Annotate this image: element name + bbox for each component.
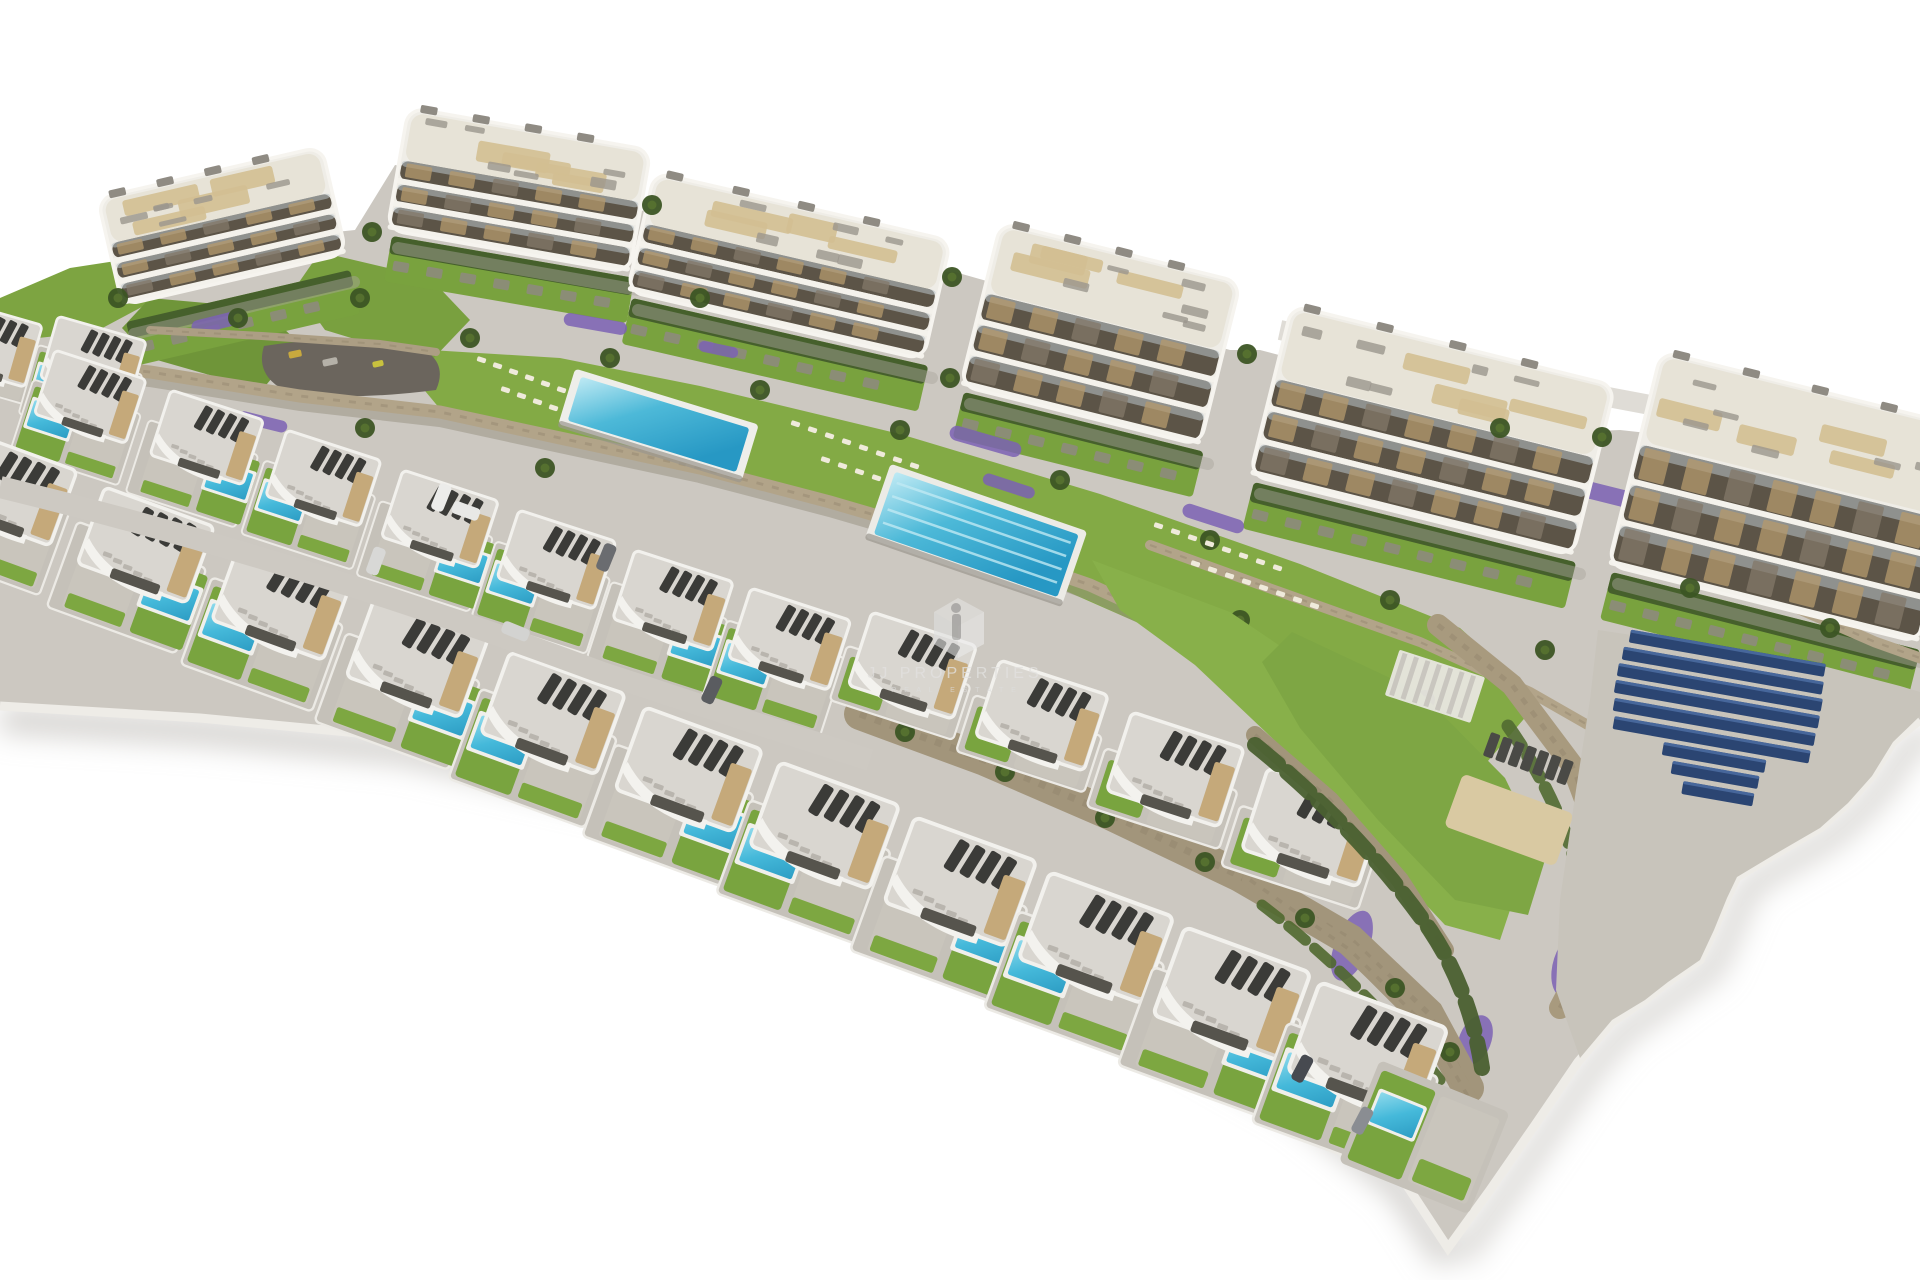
svg-text:R E A L E S T A T E: R E A L E S T A T E [891,687,1019,694]
svg-text:JJ PROPERTIES: JJ PROPERTIES [867,665,1042,682]
